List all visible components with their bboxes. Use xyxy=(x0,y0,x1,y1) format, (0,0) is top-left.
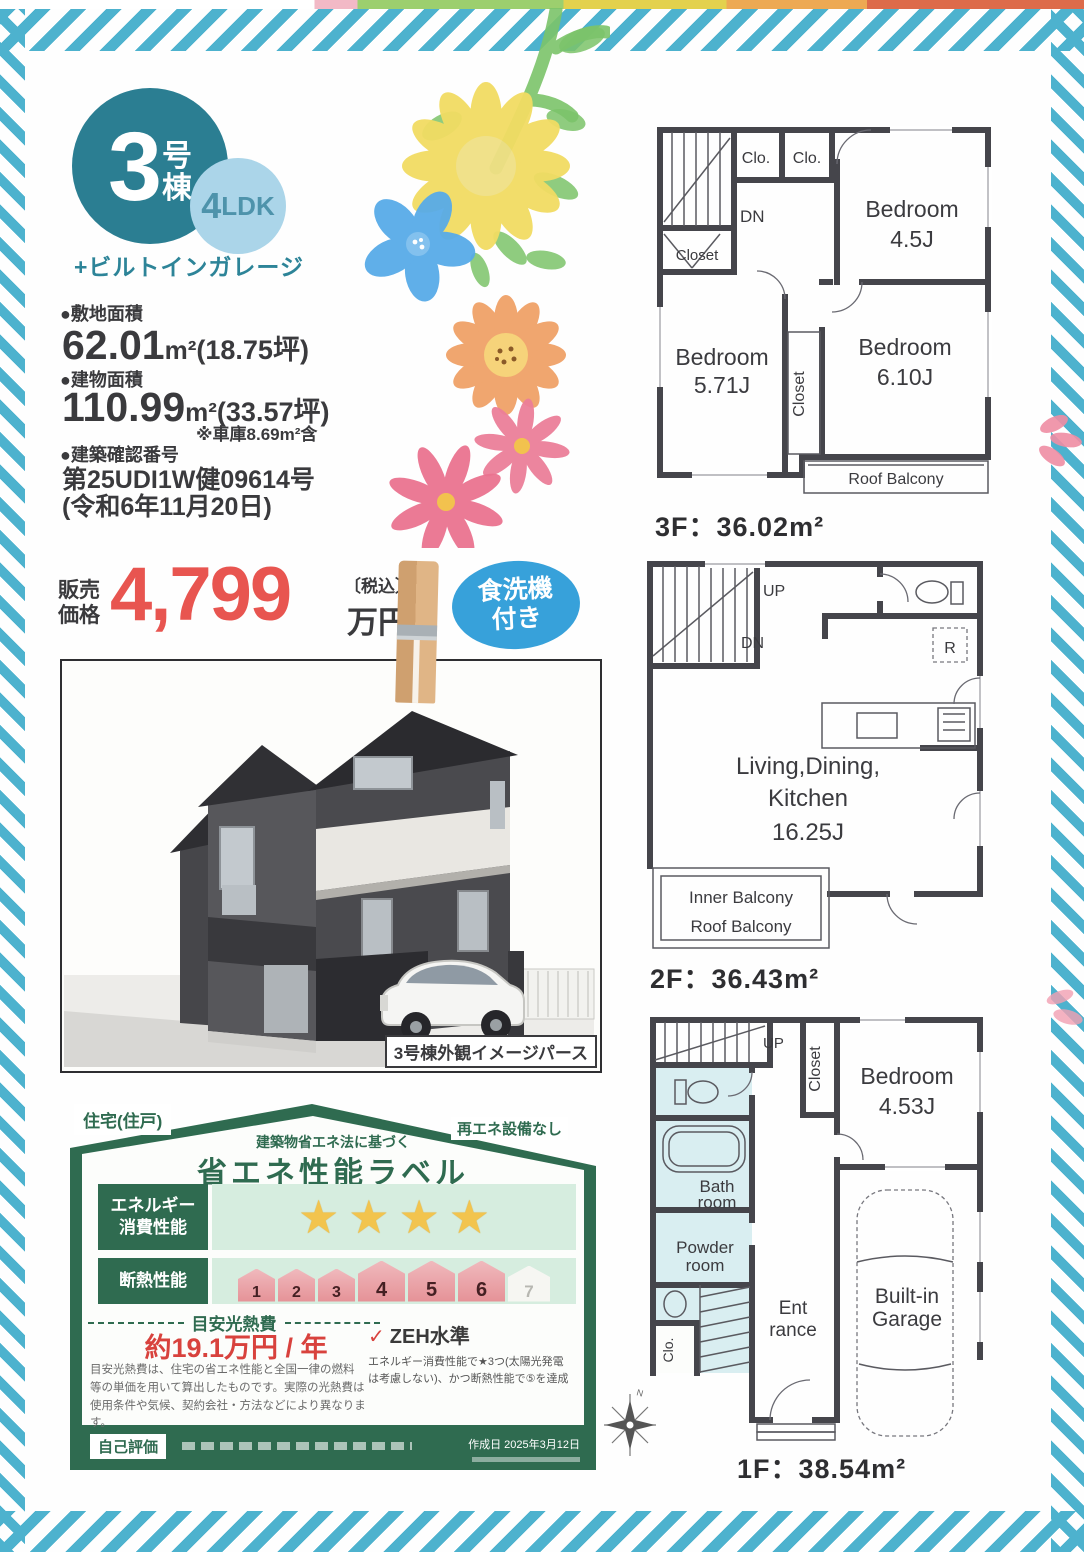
house-illustration xyxy=(62,661,596,1067)
insulation-label: 断熱性能 xyxy=(98,1258,208,1304)
room-label-ldk: Living,Dining, xyxy=(736,753,880,780)
border-petal-accent xyxy=(1036,410,1084,474)
room-label-garage: Garage xyxy=(872,1308,942,1331)
garage-area-note: ※車庫8.69m²含 xyxy=(196,420,317,445)
permit-date: (令和6年11月20日) xyxy=(62,487,272,523)
footer-fine-print xyxy=(182,1442,412,1450)
label-footer-line xyxy=(472,1457,580,1462)
clothespin-graphic xyxy=(395,561,439,704)
stairs-up-label: UP xyxy=(763,583,785,600)
room-size: 6.10J xyxy=(877,364,933,390)
border-bottom-stripes xyxy=(0,1511,1084,1552)
layout-badge: 4 LDK xyxy=(190,158,286,254)
room-label-closet: Closet xyxy=(807,1046,824,1092)
house-level-icon: 5 xyxy=(408,1261,455,1302)
house-level-icon: 3 xyxy=(318,1269,355,1302)
room-label-ldk: Kitchen xyxy=(768,785,848,812)
label-created-date: 作成日 2025年3月12日 xyxy=(468,1436,580,1452)
house-level-icon: 6 xyxy=(458,1261,505,1302)
border-right-stripes xyxy=(1051,9,1084,1552)
room-label-closet: Clo. xyxy=(793,150,821,167)
floor-plan-1f: UP Closet Bedroom 4.53J Bath room Powder… xyxy=(645,1012,990,1444)
room-label-balcony: Roof Balcony xyxy=(848,471,943,488)
flower-art xyxy=(360,8,610,548)
floor-caption-2f: 2F：36.43m² xyxy=(650,957,819,996)
zeh-note: エネルギー消費性能で★3つ(太陽光発電 は考慮しない)、かつ断熱性能で⑤を達成 xyxy=(368,1354,580,1387)
room-label-closet: Closet xyxy=(791,371,808,417)
room-label-bedroom: Bedroom xyxy=(675,344,768,370)
renewable-tab: 再エネ設備なし xyxy=(451,1117,568,1140)
room-label-entrance: rance xyxy=(769,1320,817,1341)
price-amount: 4,799 xyxy=(110,551,290,638)
garage-note: +ビルトインガレージ xyxy=(74,248,304,282)
energy-performance-label: 住宅(住戸) 再エネ設備なし 建築物省エネ法に基づく 省エネ性能ラベル エネルギ… xyxy=(70,1104,596,1470)
compass-rose-icon: N xyxy=(598,1384,662,1462)
stairs-up-label: UP xyxy=(763,1035,784,1052)
room-size: 5.71J xyxy=(694,372,750,398)
floor-caption-3f: 3F：36.02m² xyxy=(655,505,824,544)
land-area-value: 62.01m²(18.75坪) xyxy=(62,322,309,369)
room-label-closet: Clo. xyxy=(742,150,770,167)
room-label-entrance: Ent xyxy=(779,1298,808,1319)
estimated-cost-value: 約19.1万円 / 年 xyxy=(100,1326,372,1365)
room-size: 16.25J xyxy=(772,819,844,846)
insulation-scale: 1 2 3 4 5 6 7 xyxy=(212,1258,576,1304)
photo-caption: 3号棟外観イメージパース xyxy=(385,1035,597,1068)
room-label-bedroom: Bedroom xyxy=(858,334,951,360)
compass-north-label: N xyxy=(635,1387,644,1398)
refrigerator-label: R xyxy=(944,640,956,657)
house-level-icon: 2 xyxy=(278,1269,315,1302)
border-left-stripes xyxy=(0,9,25,1552)
room-size: 4.5J xyxy=(890,226,933,252)
zeh-label: ZEH水準 xyxy=(390,1326,470,1348)
zeh-block: ✓ZEH水準 エネルギー消費性能で★3つ(太陽光発電 は考慮しない)、かつ断熱性… xyxy=(368,1320,580,1387)
house-level-icon: 4 xyxy=(358,1261,405,1302)
flyer-page: 3 号 棟 4 LDK +ビルトインガレージ ●敷地面積 62.01m²(18.… xyxy=(0,0,1084,1552)
stairs-down-label: DN xyxy=(740,207,765,226)
room-label-powder: Powder xyxy=(676,1238,734,1257)
unit-suffix: 号 棟 xyxy=(162,141,192,206)
energy-consumption-label: エネルギー 消費性能 xyxy=(98,1184,208,1250)
room-label-powder: room xyxy=(686,1256,725,1275)
floor-plan-3f: Clo. Clo. DN Closet Bedroom 4.5J Bedroom… xyxy=(652,122,992,507)
unit-number: 3 xyxy=(108,118,162,215)
floor-caption-1f: 1F：38.54m² xyxy=(737,1447,906,1486)
cost-disclaimer: 目安光熱費は、住宅の省エネ性能と全国一律の燃料 等の単価を用いて算出したものです… xyxy=(90,1362,368,1433)
room-size: 4.53J xyxy=(879,1093,935,1119)
check-icon: ✓ xyxy=(368,1326,385,1348)
layout-suffix: LDK xyxy=(221,191,274,222)
room-label-bath: room xyxy=(698,1193,737,1212)
room-label-bedroom: Bedroom xyxy=(860,1063,953,1089)
floor-plan-2f: UP DN R Living,Dining, Kitchen 16.25J In… xyxy=(645,556,985,956)
energy-star-rating: ★★★★ xyxy=(212,1184,576,1250)
house-level-icon-off: 7 xyxy=(508,1266,550,1302)
dishwasher-badge: 食洗機 付き xyxy=(450,558,582,653)
dwelling-type-tab: 住宅(住戸) xyxy=(74,1104,171,1135)
insulation-house-icons: 1 2 3 4 5 6 7 xyxy=(238,1261,550,1302)
room-label-garage: Built-in xyxy=(875,1285,939,1308)
room-label-balcony: Roof Balcony xyxy=(690,917,792,936)
house-level-icon: 1 xyxy=(238,1269,275,1302)
room-label-bedroom: Bedroom xyxy=(865,196,958,222)
border-petal-accent-2 xyxy=(1040,985,1084,1045)
exterior-render-photo: 3号棟外観イメージパース xyxy=(60,659,602,1073)
room-label-closet: Clo. xyxy=(660,1338,676,1363)
price-label: 販売 価格 xyxy=(58,578,100,628)
room-label-closet: Closet xyxy=(676,247,719,264)
stairs-down-label: DN xyxy=(741,635,764,652)
room-label-balcony: Inner Balcony xyxy=(689,888,793,907)
star-icons: ★★★★ xyxy=(289,1190,499,1244)
self-assessment-tab: 自己評価 xyxy=(90,1434,166,1459)
layout-number: 4 xyxy=(201,185,221,227)
